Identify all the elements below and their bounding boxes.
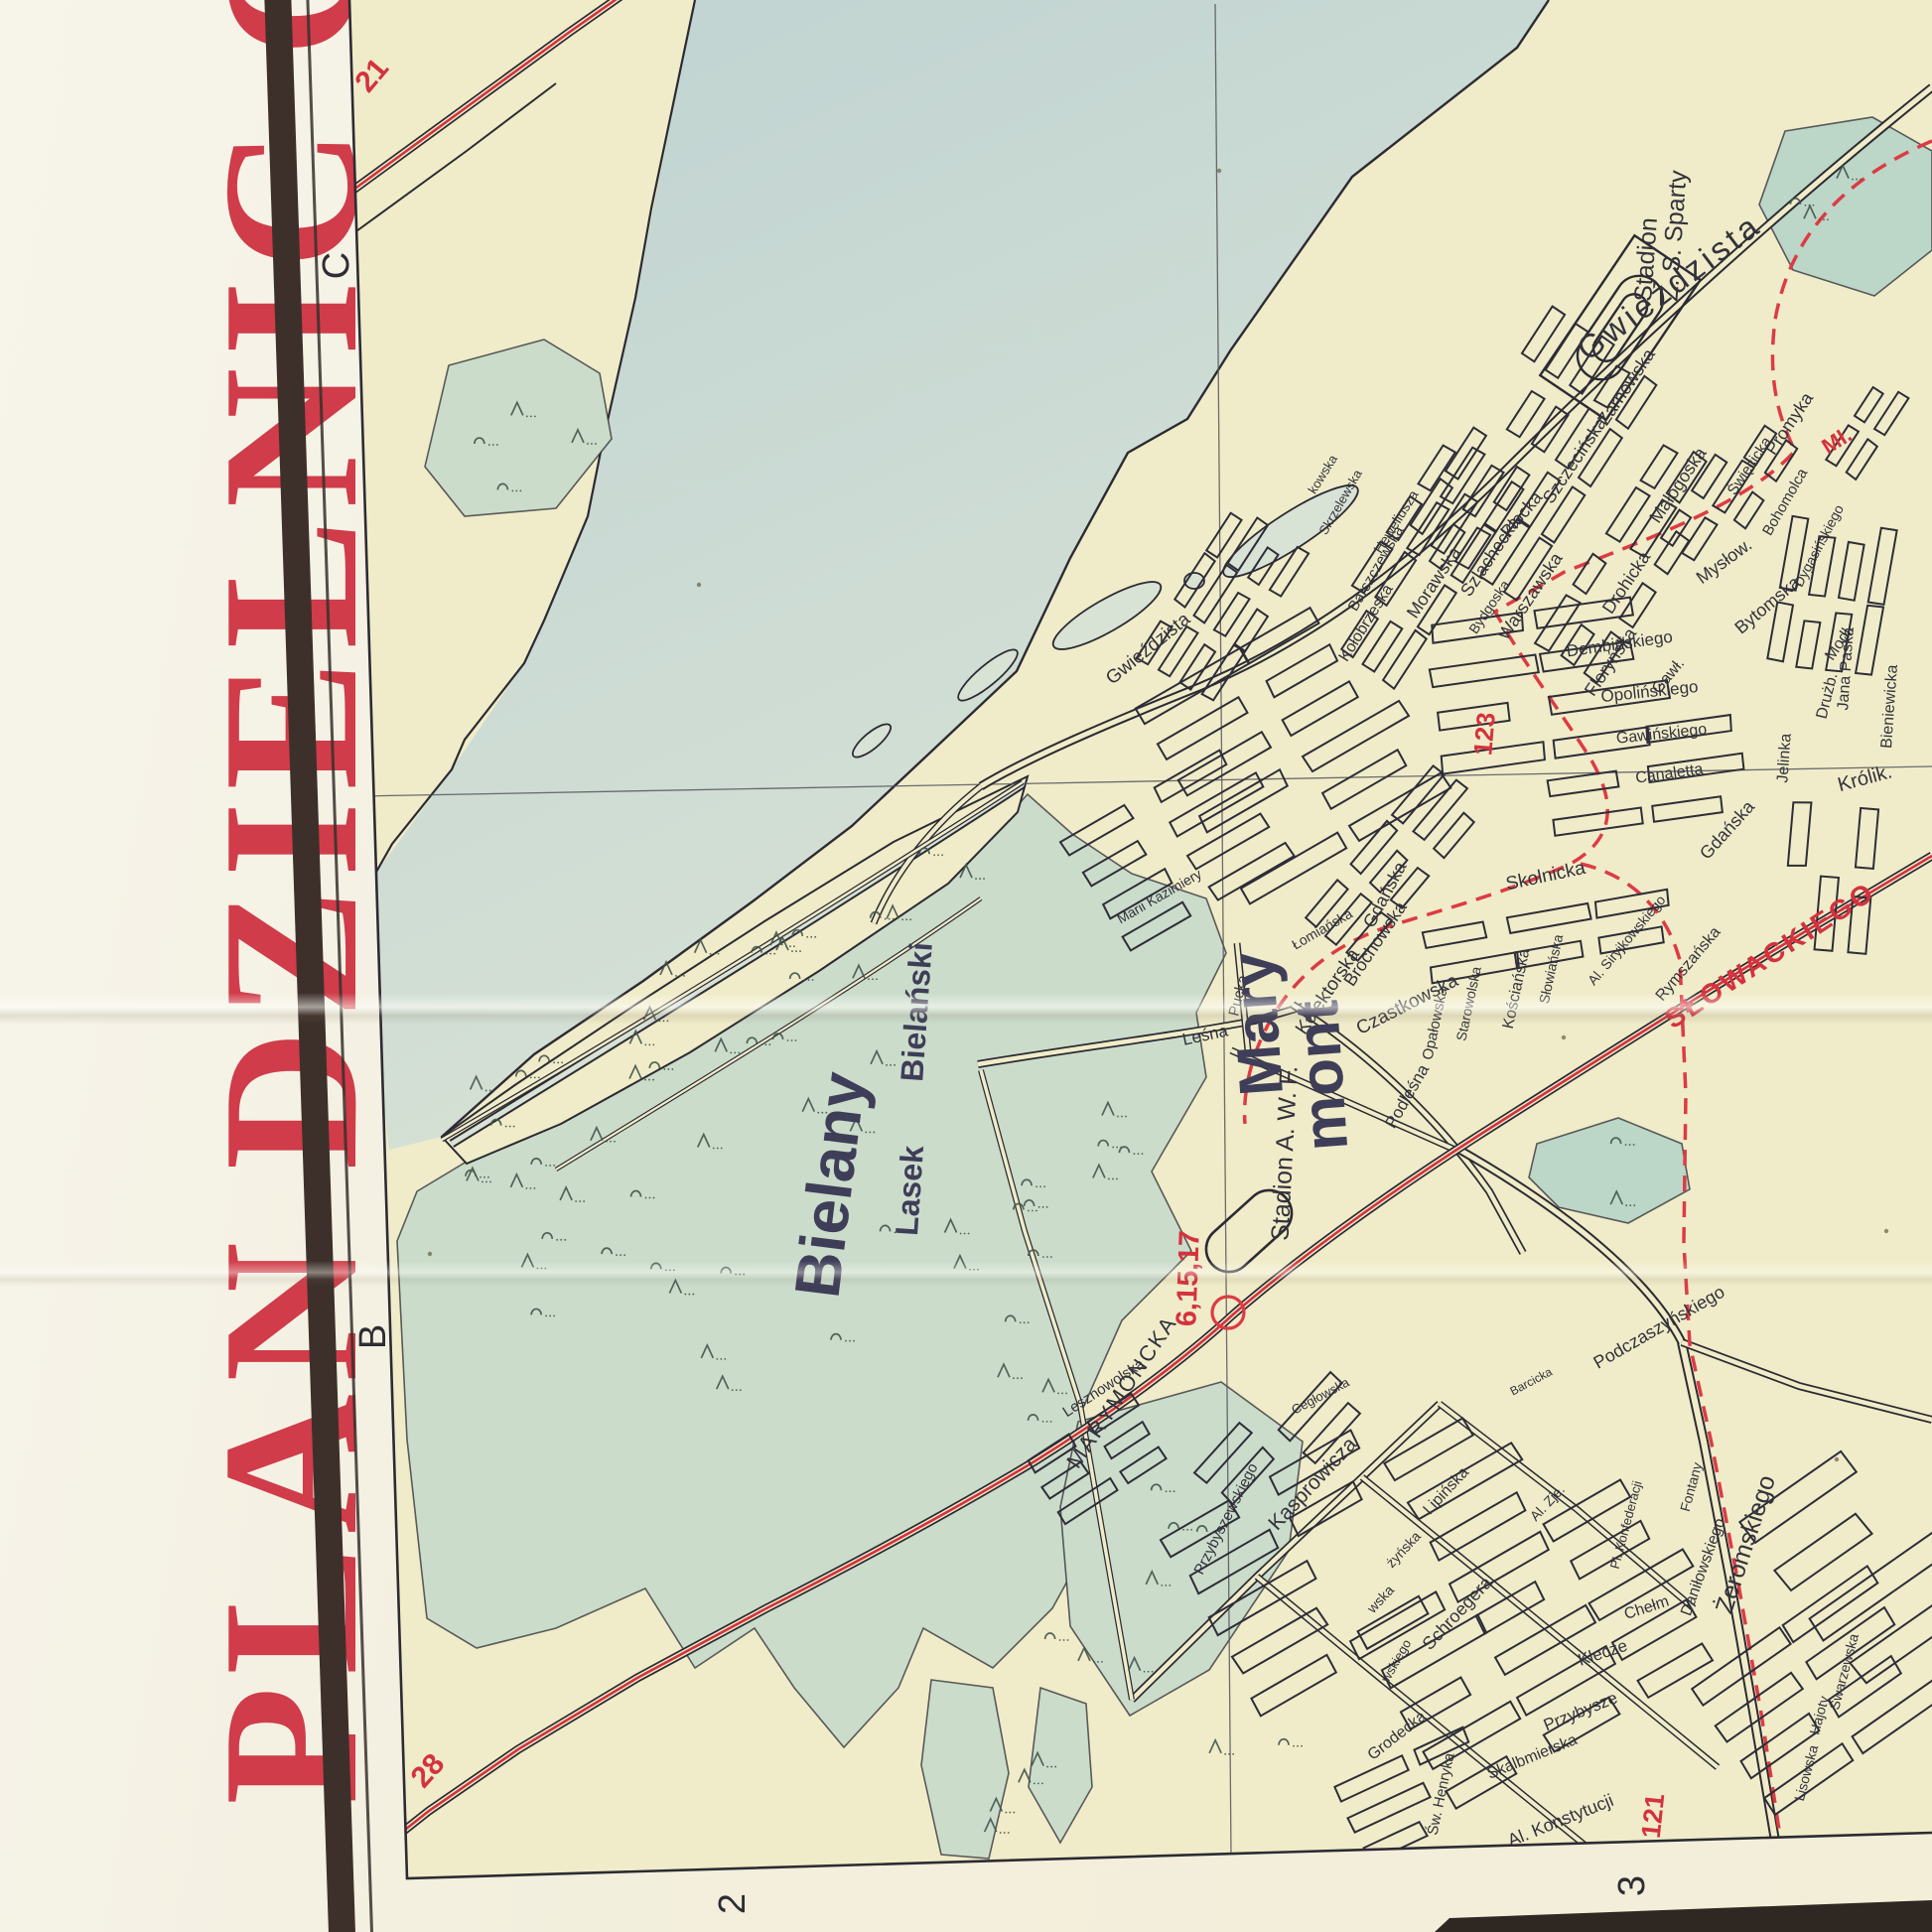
scan-speck [697, 583, 701, 587]
scan-speck [428, 1252, 432, 1256]
transit-label: 123 [1467, 711, 1501, 757]
transit-label: 121 [1636, 1792, 1671, 1840]
grid-col-label-2: 2 [712, 1893, 755, 1914]
scan-speck [1217, 169, 1221, 173]
scan-speck [1562, 1035, 1566, 1039]
grid-col-label-3: 3 [1611, 1875, 1654, 1896]
region-label: Lasek [889, 1145, 930, 1237]
grid-row-label-c: C [316, 252, 358, 279]
scan-speck [1835, 1457, 1839, 1461]
transit-label: 6,15,17 [1171, 1230, 1205, 1327]
region-label: mont [1283, 998, 1361, 1153]
grid-row-label-b: B [352, 1324, 395, 1349]
map-canvas: GwieździstaGwieździstaMARYMONCKAŻarnowsk… [0, 0, 1932, 1932]
map-content: GwieździstaGwieździstaMARYMONCKAŻarnowsk… [348, 0, 1932, 1878]
street-label: Jelinka [1774, 733, 1794, 783]
scanned-map-sheet: PLAN DZIELNIC C GwieździstaGwieździstaMA… [0, 0, 1932, 1932]
scan-speck [1884, 1229, 1888, 1233]
